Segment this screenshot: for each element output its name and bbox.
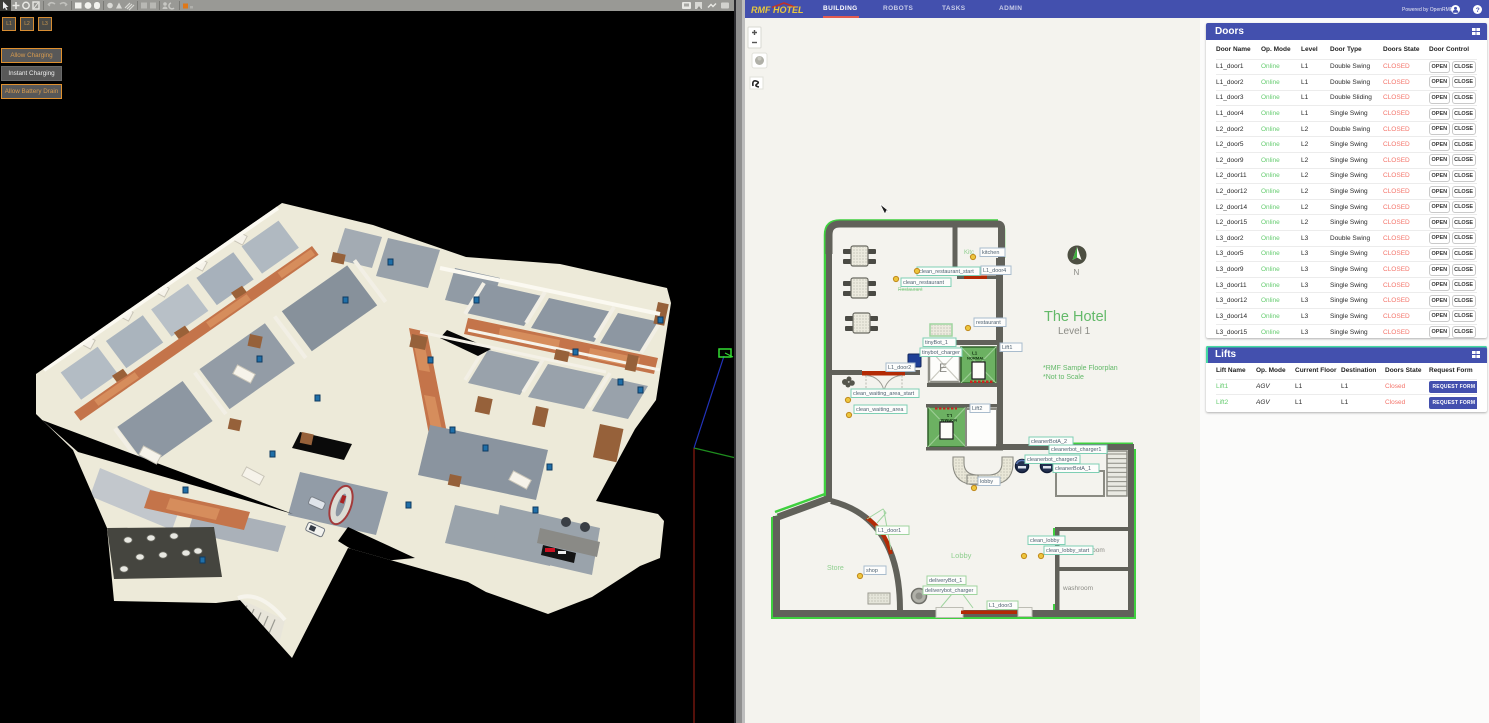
- svg-text:washroom: washroom: [1062, 585, 1093, 592]
- svg-text:cleanerBotA_1: cleanerBotA_1: [1055, 466, 1091, 472]
- svg-text:L1_door1: L1_door1: [878, 528, 901, 534]
- svg-text:The Hotel: The Hotel: [1044, 309, 1107, 325]
- svg-text:RMF HOTEL: RMF HOTEL: [751, 5, 804, 15]
- svg-text:cleanerBotA_2: cleanerBotA_2: [1031, 439, 1067, 445]
- svg-text:clean_waiting_area: clean_waiting_area: [856, 407, 904, 413]
- svg-text:Level 1: Level 1: [1058, 326, 1091, 337]
- svg-text:L1_door2: L1_door2: [888, 365, 911, 371]
- svg-text:clean_restaurant: clean_restaurant: [903, 280, 944, 286]
- svg-text:cleanerbot_charger1: cleanerbot_charger1: [1051, 447, 1101, 453]
- svg-text:NORMAL: NORMAL: [967, 356, 985, 361]
- svg-text:Restaurant: Restaurant: [898, 287, 923, 293]
- svg-text:deliveryBot_1: deliveryBot_1: [929, 578, 962, 584]
- svg-text:*Not to Scale: *Not to Scale: [1043, 374, 1084, 381]
- svg-text:clean_lobby_start: clean_lobby_start: [1046, 548, 1090, 554]
- svg-text:Store: Store: [827, 565, 844, 572]
- svg-text:lobby: lobby: [980, 479, 993, 485]
- svg-text:Lobby: Lobby: [951, 551, 972, 560]
- svg-text:kitchen: kitchen: [982, 250, 999, 256]
- svg-text:clean_restaurant_start: clean_restaurant_start: [919, 269, 974, 275]
- svg-text:*RMF Sample Floorplan: *RMF Sample Floorplan: [1043, 365, 1118, 372]
- svg-text:clean_lobby: clean_lobby: [1030, 538, 1060, 544]
- svg-text:restaurant: restaurant: [976, 320, 1001, 326]
- svg-text:L1_door3: L1_door3: [989, 603, 1012, 609]
- svg-text:shop: shop: [866, 568, 878, 574]
- svg-text:L1_door4: L1_door4: [983, 268, 1006, 274]
- svg-text:cleanerbot_charger2: cleanerbot_charger2: [1027, 457, 1077, 463]
- svg-text:tinybot_charger: tinybot_charger: [922, 350, 960, 356]
- svg-text:Lift2: Lift2: [972, 406, 982, 412]
- svg-text:L1: L1: [946, 413, 952, 418]
- svg-text:Lift1: Lift1: [1002, 345, 1012, 351]
- svg-text:N: N: [1074, 268, 1080, 277]
- svg-text:tinyBot_1: tinyBot_1: [925, 340, 948, 346]
- svg-text:clean_waiting_area_start: clean_waiting_area_start: [853, 391, 915, 397]
- svg-text:E: E: [939, 361, 947, 375]
- svg-text:?: ?: [1476, 7, 1480, 14]
- svg-text:deliverybot_charger: deliverybot_charger: [925, 588, 973, 594]
